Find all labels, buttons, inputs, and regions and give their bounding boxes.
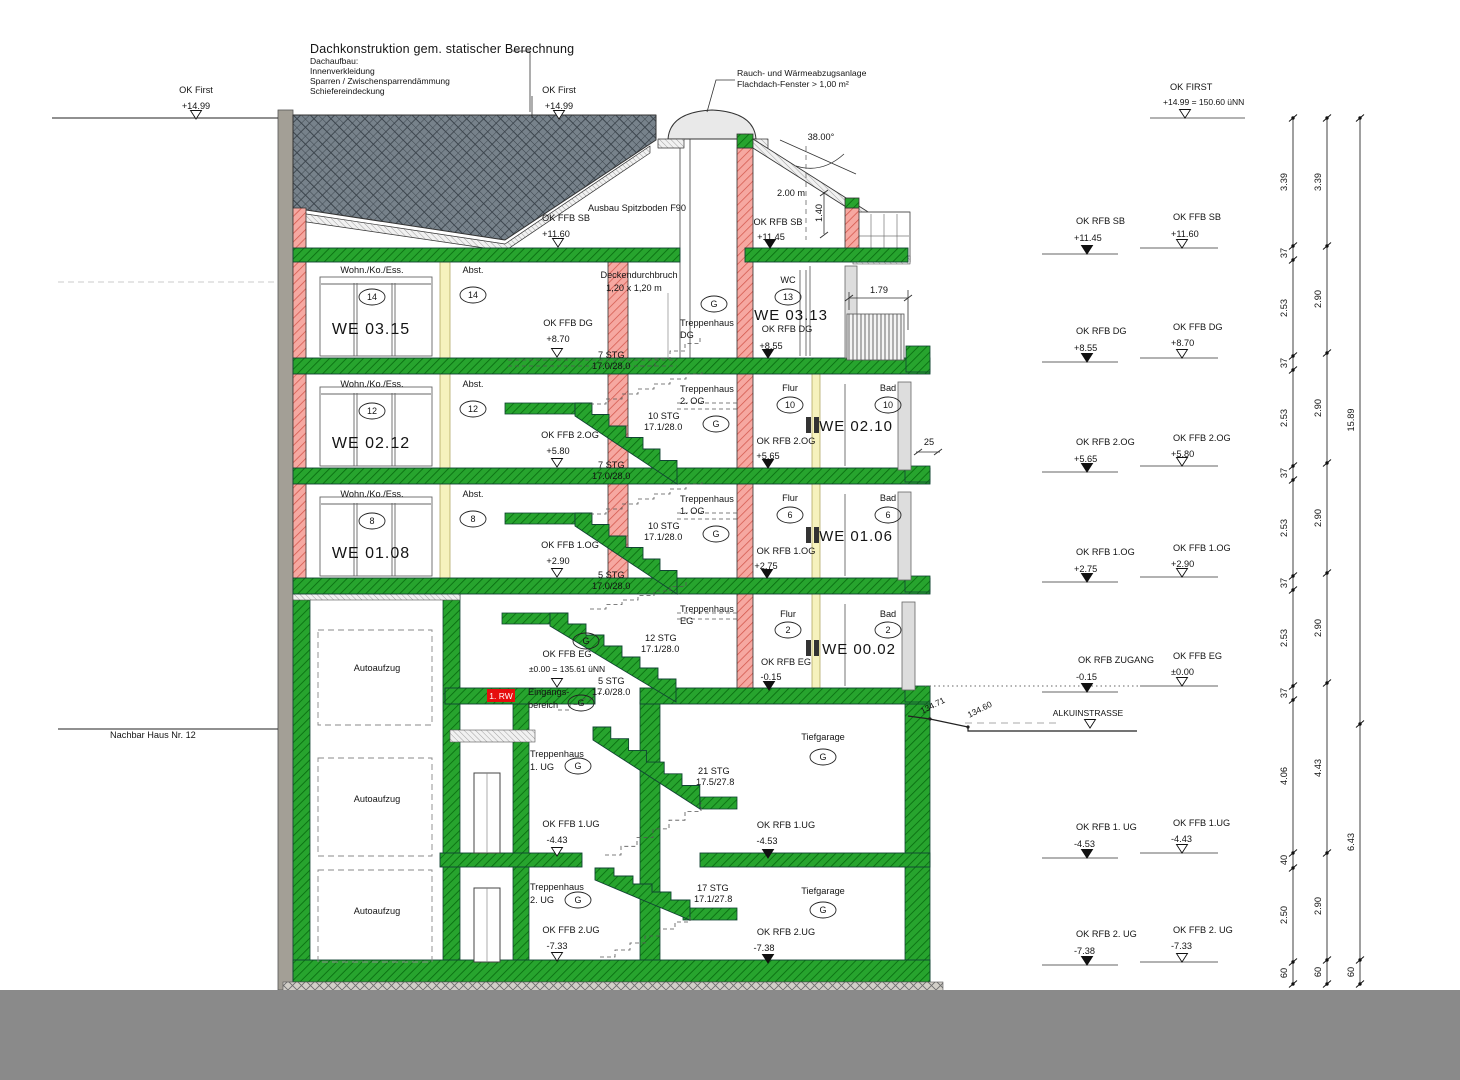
drawing-label: Treppenhaus	[530, 749, 584, 759]
slab-sb-right	[745, 248, 908, 262]
we-0002: WE 00.02	[822, 641, 896, 658]
drawing-label: OK RFB 2.UG	[757, 927, 815, 937]
site	[52, 110, 293, 990]
drawing-label: OK RFB 2.OG	[757, 436, 816, 446]
room-number: 12	[468, 404, 478, 414]
drawing-label: Wohn./Ko./Ess.	[340, 265, 403, 275]
drawing-label: +11.60	[1171, 229, 1199, 239]
drawing-label: -0.15	[761, 672, 782, 682]
room-number: G	[712, 529, 719, 539]
rfb-level-marker	[1082, 850, 1093, 859]
room-number: 10	[785, 400, 795, 410]
slab-1ug	[440, 853, 582, 867]
drawing-label: ±0.00 = 135.61 üNN	[529, 664, 605, 674]
drawing-label: +5.65	[1074, 454, 1097, 464]
angle-arc	[796, 154, 844, 168]
landing	[502, 613, 550, 624]
drawing-label: OK RFB 1.OG	[757, 546, 816, 556]
dim-value: 4.43	[1313, 759, 1323, 777]
landing-ug	[683, 908, 737, 920]
drawing-label: -4.53	[757, 836, 778, 846]
drawing-label: +5.80	[546, 446, 569, 456]
drawing-label: Abst.	[463, 265, 484, 275]
autoaufzug-2ug: Autoaufzug	[354, 906, 401, 916]
dim-value: 2.90	[1313, 399, 1323, 417]
drawing-label: OK RFB 2.OG	[1076, 437, 1135, 447]
street-profile	[908, 716, 1137, 731]
dim-value: 37	[1279, 578, 1289, 588]
dim-value: 37	[1279, 358, 1289, 368]
exterior-wall-concrete	[293, 592, 310, 982]
drawing-label: OK FFB 1.OG	[1173, 543, 1231, 553]
dim-value: 3.39	[1313, 173, 1323, 191]
drawing-label: +8.55	[759, 341, 782, 351]
drawing-label: +11.45	[1074, 233, 1102, 243]
drawing-label: Flur	[782, 383, 798, 393]
rfb-level-marker	[1082, 246, 1093, 255]
ffb-level-lines	[1140, 248, 1218, 962]
drawing-label: Eingangs-	[528, 687, 569, 697]
drawing-label: +5.65	[756, 451, 779, 461]
drawing-label: Treppenhaus	[680, 494, 734, 504]
room-number: 8	[369, 516, 374, 526]
room-number: 14	[367, 292, 377, 302]
drawing-label: 10 STG	[648, 521, 680, 531]
room-number: 6	[885, 510, 890, 520]
level-markers	[191, 110, 1191, 966]
drawing-label: WC	[780, 275, 796, 285]
ok-ffb-sb-value: +11.60	[542, 229, 570, 239]
roof-angle: 38.00°	[808, 132, 835, 142]
ffb-level-marker	[553, 239, 564, 248]
ring-beam	[845, 198, 859, 208]
ok-first-mid-value: +14.99	[545, 101, 573, 111]
dim-25: 25	[924, 437, 934, 447]
dim-value: 15.89	[1346, 409, 1356, 432]
dim-value: 60	[1279, 968, 1289, 978]
drawing-label: DG	[680, 330, 694, 340]
drawing-label: OK RFB DG	[1076, 326, 1127, 336]
room-number: G	[574, 761, 581, 771]
ffb-level-marker	[552, 569, 563, 578]
drawing-label: +2.75	[1074, 564, 1097, 574]
dim-value: 3.39	[1279, 173, 1289, 191]
drawing-label: 1,20 x 1,20 m	[606, 283, 662, 293]
drawing-label: Tiefgarage	[801, 886, 845, 896]
smoke-vent-note: Rauch- und Wärmeabzugsanlage Flachdach-F…	[737, 68, 937, 90]
drawing-label: 2. UG	[530, 895, 554, 905]
drawing-label: OK FFB EG	[542, 649, 591, 659]
architectural-section-drawing: 3.39372.53372.53372.53372.53374.06402.50…	[0, 0, 1460, 1080]
room-number: G	[819, 752, 826, 762]
drawing-label: 21 STG	[698, 766, 730, 776]
drawing-label: 5 STG	[598, 676, 625, 686]
ffb-level-marker	[1177, 569, 1188, 578]
drawing-label: -7.33	[1171, 941, 1192, 951]
ffb-level-marker	[1180, 110, 1191, 119]
rfb-level-marker	[1082, 684, 1093, 693]
ffb-level-marker	[1085, 720, 1096, 729]
drawing-label: +8.55	[1074, 343, 1097, 353]
room-number: 2	[885, 625, 890, 635]
landing-ug	[700, 797, 737, 809]
rfb-level-marker	[1082, 464, 1093, 473]
drawing-label: Treppenhaus	[680, 384, 734, 394]
drawing-label: -7.38	[754, 943, 775, 953]
balcony-parapet	[906, 346, 930, 372]
dim-value: 2.53	[1279, 299, 1289, 317]
room-number: 2	[785, 625, 790, 635]
roof-note-line: Schiefereindeckung	[310, 86, 570, 96]
drawing-label: Abst.	[463, 489, 484, 499]
drawing-label: OK FFB 2.OG	[541, 430, 599, 440]
rwa-note-line: Rauch- und Wärmeabzugsanlage	[737, 68, 937, 79]
drawing-label: Flur	[780, 609, 796, 619]
room-number: 6	[787, 510, 792, 520]
drawing-label: OK FFB 1.UG	[1173, 818, 1230, 828]
drawing-label: OK RFB EG	[761, 657, 811, 667]
drawing-label: Wohn./Ko./Ess.	[340, 489, 403, 499]
room-number: 14	[468, 290, 478, 300]
dim-value: 2.90	[1313, 619, 1323, 637]
ffb-level-marker	[1177, 954, 1188, 963]
drawing-label: 17 STG	[697, 883, 729, 893]
drawing-label: Treppenhaus	[680, 604, 734, 614]
drawing-label: 5 STG	[598, 570, 625, 580]
we-0210: WE 02.10	[819, 418, 893, 435]
dim-value: 2.90	[1313, 290, 1323, 308]
slab-1ug-garage	[700, 853, 930, 867]
neighbor-label: Nachbar Haus Nr. 12	[110, 730, 196, 740]
garage-wall-right	[905, 702, 930, 982]
dim-value: 2.90	[1313, 509, 1323, 527]
section-canvas: 3.39372.53372.53372.53372.53374.06402.50…	[0, 0, 1460, 1080]
rfb-level-lines	[1042, 254, 1118, 965]
ok-first-left-value: +14.99	[182, 101, 210, 111]
skylight-curb	[658, 139, 684, 148]
neighbor-wall	[278, 110, 293, 990]
stair-wall-concrete	[513, 702, 529, 982]
window-eg	[902, 602, 915, 690]
drawing-label: +2.90	[546, 556, 569, 566]
drawing-label: Treppenhaus	[530, 882, 584, 892]
drawing-label: Treppenhaus	[680, 318, 734, 328]
drawing-label: 10 STG	[648, 411, 680, 421]
dim-value: 4.06	[1279, 767, 1289, 785]
drawing-label: Deckendurchbruch	[600, 270, 677, 280]
dim-value: 60	[1313, 967, 1323, 977]
room-number: G	[712, 419, 719, 429]
slab-eg-entry	[445, 688, 595, 704]
room-number: 13	[783, 292, 793, 302]
autoaufzug-eg: Autoaufzug	[354, 663, 401, 673]
ffb-level-marker	[1177, 678, 1188, 687]
roof-note-line: Innenverkleidung	[310, 66, 570, 76]
drawing-label: OK FFB 1.UG	[542, 819, 599, 829]
landing	[505, 513, 575, 524]
drawing-label: -7.38	[1074, 946, 1095, 956]
we-0313: WE 03.13	[754, 307, 828, 324]
drawing-label: OK FIRST	[1170, 82, 1213, 92]
ground-band	[0, 990, 1460, 1080]
drawing-label: 12 STG	[645, 633, 677, 643]
drawing-label: Bad	[880, 493, 896, 503]
drawing-label: 17.1/28.0	[644, 422, 682, 432]
drawing-label: 17.1/27.8	[694, 894, 732, 904]
drawing-label: Wohn./Ko./Ess.	[340, 379, 403, 389]
autoaufzug-1ug: Autoaufzug	[354, 794, 401, 804]
drawing-label: OK RFB ZUGANG	[1078, 655, 1154, 665]
ffb-level-marker	[1177, 240, 1188, 249]
drawing-label: OK RFB SB	[1076, 216, 1125, 226]
dim-1-79: 1.79	[870, 285, 888, 295]
drawing-label: OK RFB 1.OG	[1076, 547, 1135, 557]
drawing-label: 17.1/28.0	[644, 532, 682, 542]
slab-eg	[640, 688, 930, 704]
drawing-label: +8.70	[546, 334, 569, 344]
ffb-level-marker	[552, 349, 563, 358]
ring-beam	[737, 134, 753, 148]
dim-value: 2.50	[1279, 906, 1289, 924]
drawing-label: OK FFB 1.OG	[541, 540, 599, 550]
stair-wall-masonry	[737, 148, 753, 688]
drawing-label: +5.80	[1171, 449, 1194, 459]
ffb-level-marker	[552, 679, 563, 688]
roof-note-line: Sparren / Zwischensparrendämmung	[310, 76, 570, 86]
drawing-label: Bad	[880, 383, 896, 393]
room-number: G	[819, 905, 826, 915]
spot-13460: 134.60	[966, 699, 994, 720]
we-0108: WE 01.08	[332, 545, 410, 562]
drawing-label: EG	[680, 616, 693, 626]
room-number: 12	[367, 406, 377, 416]
roof-note-title: Dachkonstruktion gem. statischer Berechn…	[310, 42, 570, 56]
rfb-level-marker	[1082, 957, 1093, 966]
window-1og	[898, 492, 911, 580]
lift-shaft-wall	[443, 592, 460, 982]
drawing-label: 7 STG	[598, 350, 625, 360]
dim-value: 37	[1279, 468, 1289, 478]
partition-wall	[440, 262, 450, 588]
drawing-label: OK RFB 2. UG	[1076, 929, 1137, 939]
drawing-label: 17.0/28.0	[592, 471, 630, 481]
drawing-label: Flur	[782, 493, 798, 503]
drawing-label: -4.43	[1171, 834, 1192, 844]
drawing-label: -0.15	[1076, 672, 1097, 682]
room-number: G	[710, 299, 717, 309]
ok-rfb-sb-value: +11.45	[757, 232, 785, 242]
drawing-label: Bad	[880, 609, 896, 619]
ok-ffb-sb: OK FFB SB	[542, 213, 590, 223]
roof-note-line: Dachaufbau:	[310, 56, 570, 66]
room-number: G	[577, 698, 584, 708]
spitzboden-note: Ausbau Spitzboden F90	[588, 203, 686, 213]
drawing-label: 2. OG	[680, 396, 705, 406]
dim-value: 6.43	[1346, 833, 1356, 851]
window-2og	[898, 382, 911, 470]
exterior-wall-left-masonry	[293, 208, 306, 592]
drawing-label: +8.70	[1171, 338, 1194, 348]
ok-rfb-sb: OK RFB SB	[753, 217, 802, 227]
dim-value: 2.53	[1279, 519, 1289, 537]
drawing-label: Tiefgarage	[801, 732, 845, 742]
rfb-level-marker	[1082, 574, 1093, 583]
drawing-label: OK FFB DG	[543, 318, 593, 328]
street-label: ALKUINSTRASSE	[1053, 708, 1124, 718]
drawing-label: OK RFB 1. UG	[1076, 822, 1137, 832]
drawing-label: -4.53	[1074, 839, 1095, 849]
room-number: 10	[883, 400, 893, 410]
entry-step-insulation	[450, 730, 535, 742]
escape-route-badge: 1. RW	[489, 691, 512, 701]
dim-value: 40	[1279, 855, 1289, 865]
balcony-railing	[847, 314, 904, 360]
drawing-label: OK RFB 1.UG	[757, 820, 815, 830]
garage-wall	[640, 702, 660, 982]
drawing-label: 17.0/28.0	[592, 687, 630, 697]
landing	[505, 403, 575, 414]
room-number: G	[582, 636, 589, 646]
drawing-label: 17.5/27.8	[696, 777, 734, 787]
ground	[0, 686, 1460, 1080]
we-0106: WE 01.06	[819, 528, 893, 545]
foundation-slab	[293, 960, 930, 982]
drawing-label: OK FFB DG	[1173, 322, 1223, 332]
drawing-label: OK FFB 2.UG	[542, 925, 599, 935]
room-number: 8	[470, 514, 475, 524]
dim-1-40: 1.40	[814, 204, 824, 222]
dim-value: 60	[1346, 967, 1356, 977]
drawing-label: 17.0/28.0	[592, 361, 630, 371]
drawing-label: bereich	[528, 700, 558, 710]
dim-value: 2.53	[1279, 409, 1289, 427]
drawing-label: -7.33	[547, 941, 568, 951]
drawing-label: 7 STG	[598, 460, 625, 470]
roof-construction-note: Dachkonstruktion gem. statischer Berechn…	[310, 42, 570, 96]
drawing-label: OK FFB EG	[1173, 651, 1222, 661]
rfb-level-marker	[1082, 354, 1093, 363]
ffb-level-marker	[1177, 845, 1188, 854]
room-number: G	[574, 895, 581, 905]
rwa-note-line: Flachdach-Fenster > 1,00 m²	[737, 79, 937, 90]
drawing-label: 17.1/28.0	[641, 644, 679, 654]
ok-first-left-label: OK First	[179, 85, 213, 95]
drawing-label: +2.75	[754, 561, 777, 571]
we-0212: WE 02.12	[332, 435, 410, 452]
slab-sb	[293, 248, 680, 262]
drawing-label: 1. UG	[530, 762, 554, 772]
drawing-label: 1. OG	[680, 506, 705, 516]
drawing-label: OK FFB 2.OG	[1173, 433, 1231, 443]
dim-value: 2.90	[1313, 897, 1323, 915]
drawing-label: -4.43	[547, 835, 568, 845]
ffb-level-marker	[552, 459, 563, 468]
dimension-chains: 3.39372.53372.53372.53372.53374.06402.50…	[1279, 115, 1364, 988]
drawing-label: 17.0/28.0	[592, 581, 630, 591]
headroom-dim: 2.00 m	[777, 188, 805, 198]
drawing-label: Abst.	[463, 379, 484, 389]
drawing-label: OK FFB 2. UG	[1173, 925, 1233, 935]
drawing-label: OK FFB SB	[1173, 212, 1221, 222]
drawing-label: +14.99 = 150.60 üNN	[1163, 97, 1244, 107]
drawing-label: OK RFB DG	[762, 324, 813, 334]
dim-value: 37	[1279, 688, 1289, 698]
rwa-note-leader	[707, 80, 735, 112]
drawing-label: +2.90	[1171, 559, 1194, 569]
drawing-label: ±0.00	[1171, 667, 1194, 677]
we-0315: WE 03.15	[332, 321, 410, 338]
dim-value: 37	[1279, 248, 1289, 258]
ffb-level-marker	[1177, 350, 1188, 359]
dim-value: 2.53	[1279, 629, 1289, 647]
